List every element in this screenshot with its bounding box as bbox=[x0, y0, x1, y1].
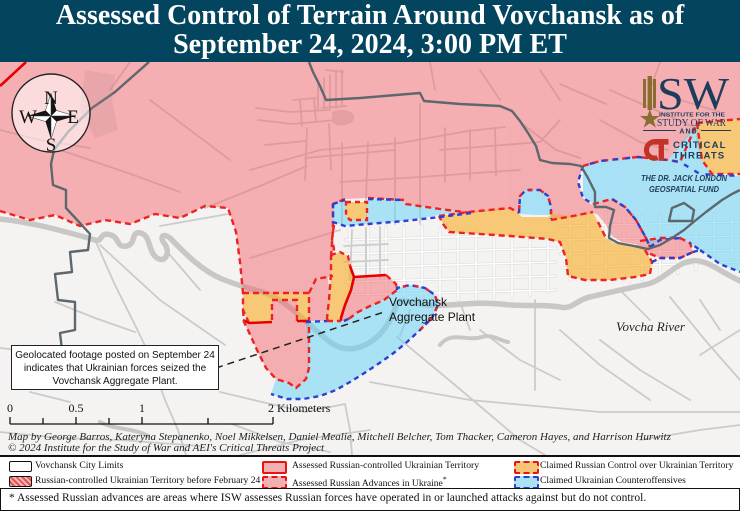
svg-text:CRITICAL: CRITICAL bbox=[673, 140, 727, 151]
svg-text:E: E bbox=[67, 107, 79, 128]
svg-text:GEOSPATIAL FUND: GEOSPATIAL FUND bbox=[649, 184, 719, 194]
svg-text:THE DR. JACK LONDON: THE DR. JACK LONDON bbox=[641, 173, 728, 183]
svg-text:SW: SW bbox=[657, 69, 730, 119]
svg-text:STUDY OF WAR: STUDY OF WAR bbox=[657, 117, 727, 129]
svg-text:0: 0 bbox=[7, 401, 13, 415]
svg-text:S: S bbox=[46, 135, 57, 156]
svg-text:Vovcha River: Vovcha River bbox=[616, 319, 686, 334]
svg-text:THREATS: THREATS bbox=[673, 151, 725, 162]
svg-text:N: N bbox=[44, 88, 58, 109]
svg-text:Vovchansk: Vovchansk bbox=[389, 295, 448, 309]
svg-text:2 Kilometers: 2 Kilometers bbox=[268, 401, 331, 415]
svg-text:Aggregate Plant: Aggregate Plant bbox=[389, 310, 476, 324]
svg-text:AND: AND bbox=[679, 129, 697, 136]
svg-text:W: W bbox=[19, 107, 37, 128]
svg-text:© 2024 Institute for the Study: © 2024 Institute for the Study of War an… bbox=[8, 442, 325, 454]
svg-text:0.5: 0.5 bbox=[69, 401, 84, 415]
svg-text:1: 1 bbox=[139, 401, 145, 415]
